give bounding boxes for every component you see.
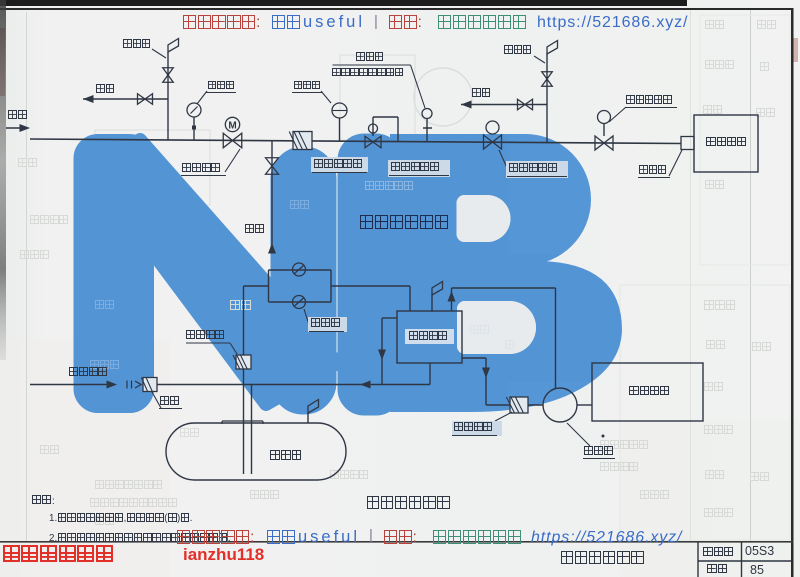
svg-text:M: M	[228, 121, 236, 132]
